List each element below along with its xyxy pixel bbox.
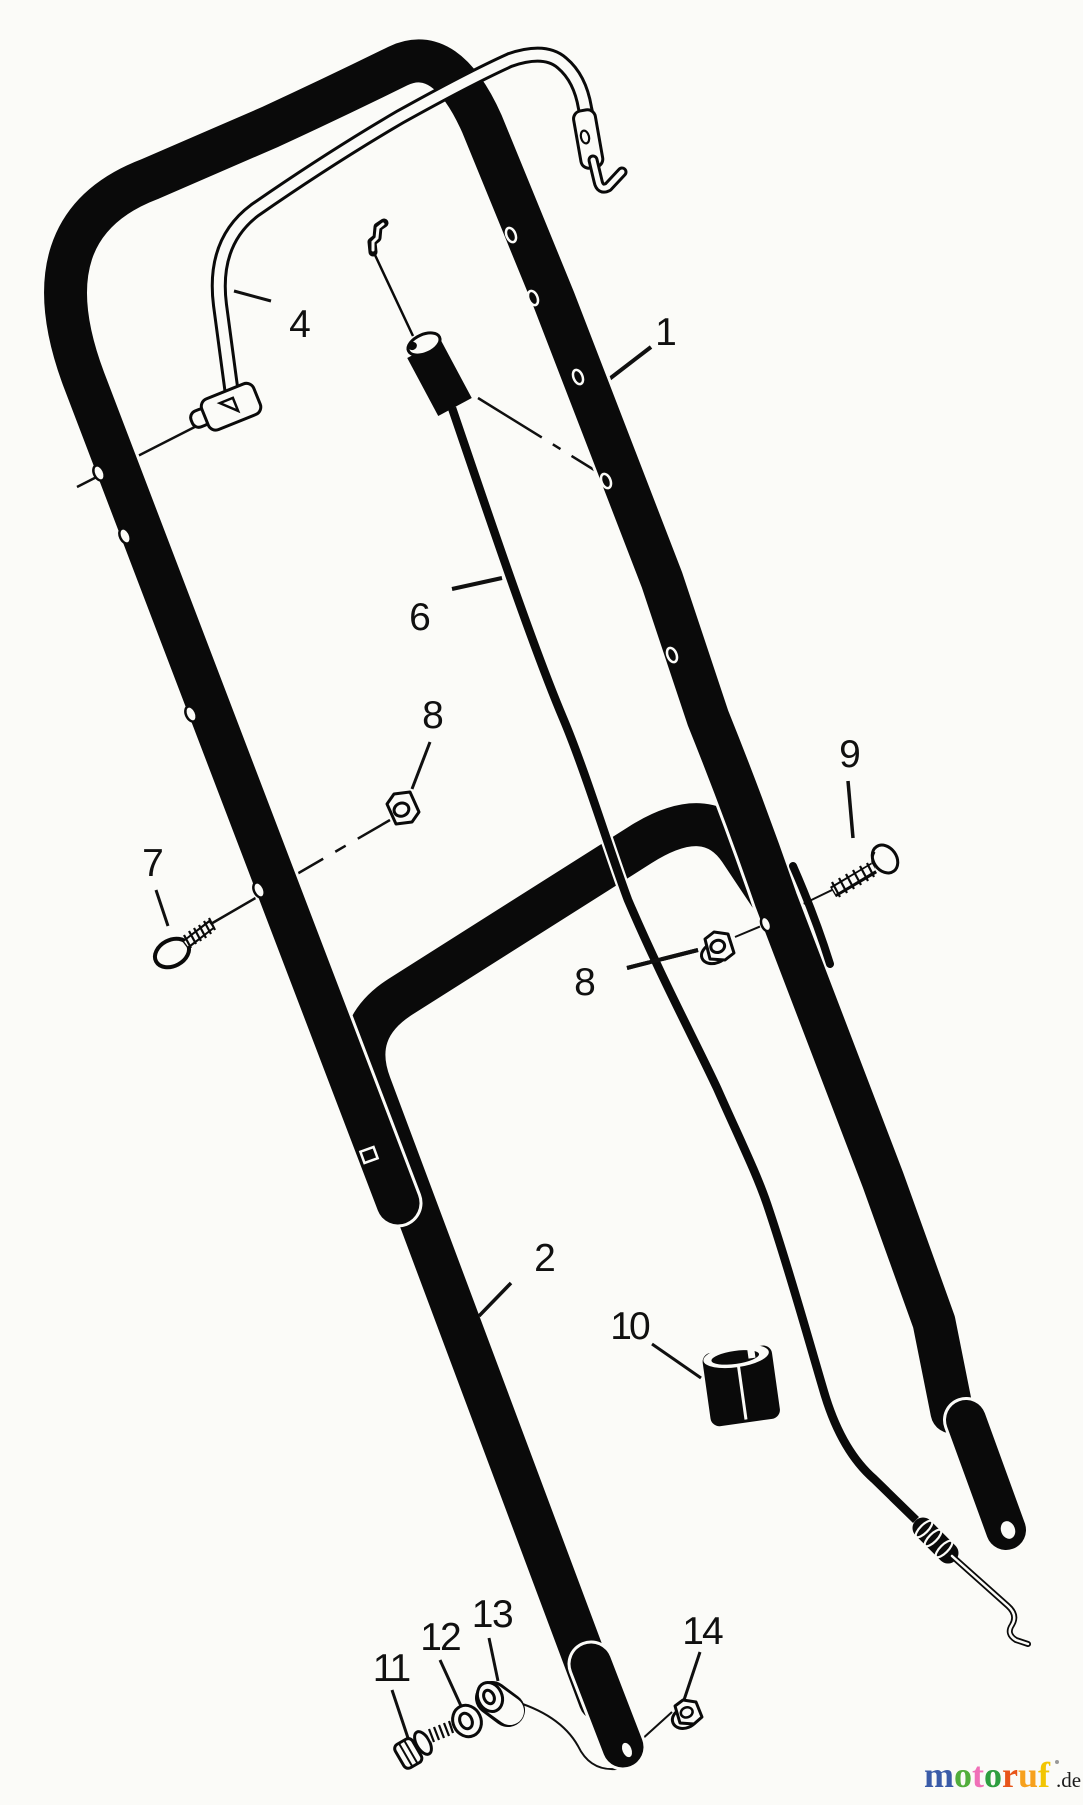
svg-text:14: 14 (682, 1610, 723, 1653)
svg-text:8: 8 (422, 694, 444, 737)
svg-text:13: 13 (472, 1593, 512, 1636)
svg-text:9: 9 (839, 733, 861, 776)
svg-text:6: 6 (409, 596, 431, 639)
svg-text:.de: .de (1056, 1768, 1081, 1792)
svg-text:motoruf: motoruf (924, 1755, 1051, 1795)
svg-text:12: 12 (420, 1616, 460, 1659)
svg-text:2: 2 (534, 1237, 556, 1280)
svg-text:4: 4 (289, 303, 311, 346)
svg-text:7: 7 (142, 842, 164, 885)
svg-text:1: 1 (655, 311, 677, 354)
svg-text:10: 10 (610, 1305, 650, 1348)
svg-text:11: 11 (373, 1647, 410, 1690)
svg-text:8: 8 (574, 961, 596, 1004)
